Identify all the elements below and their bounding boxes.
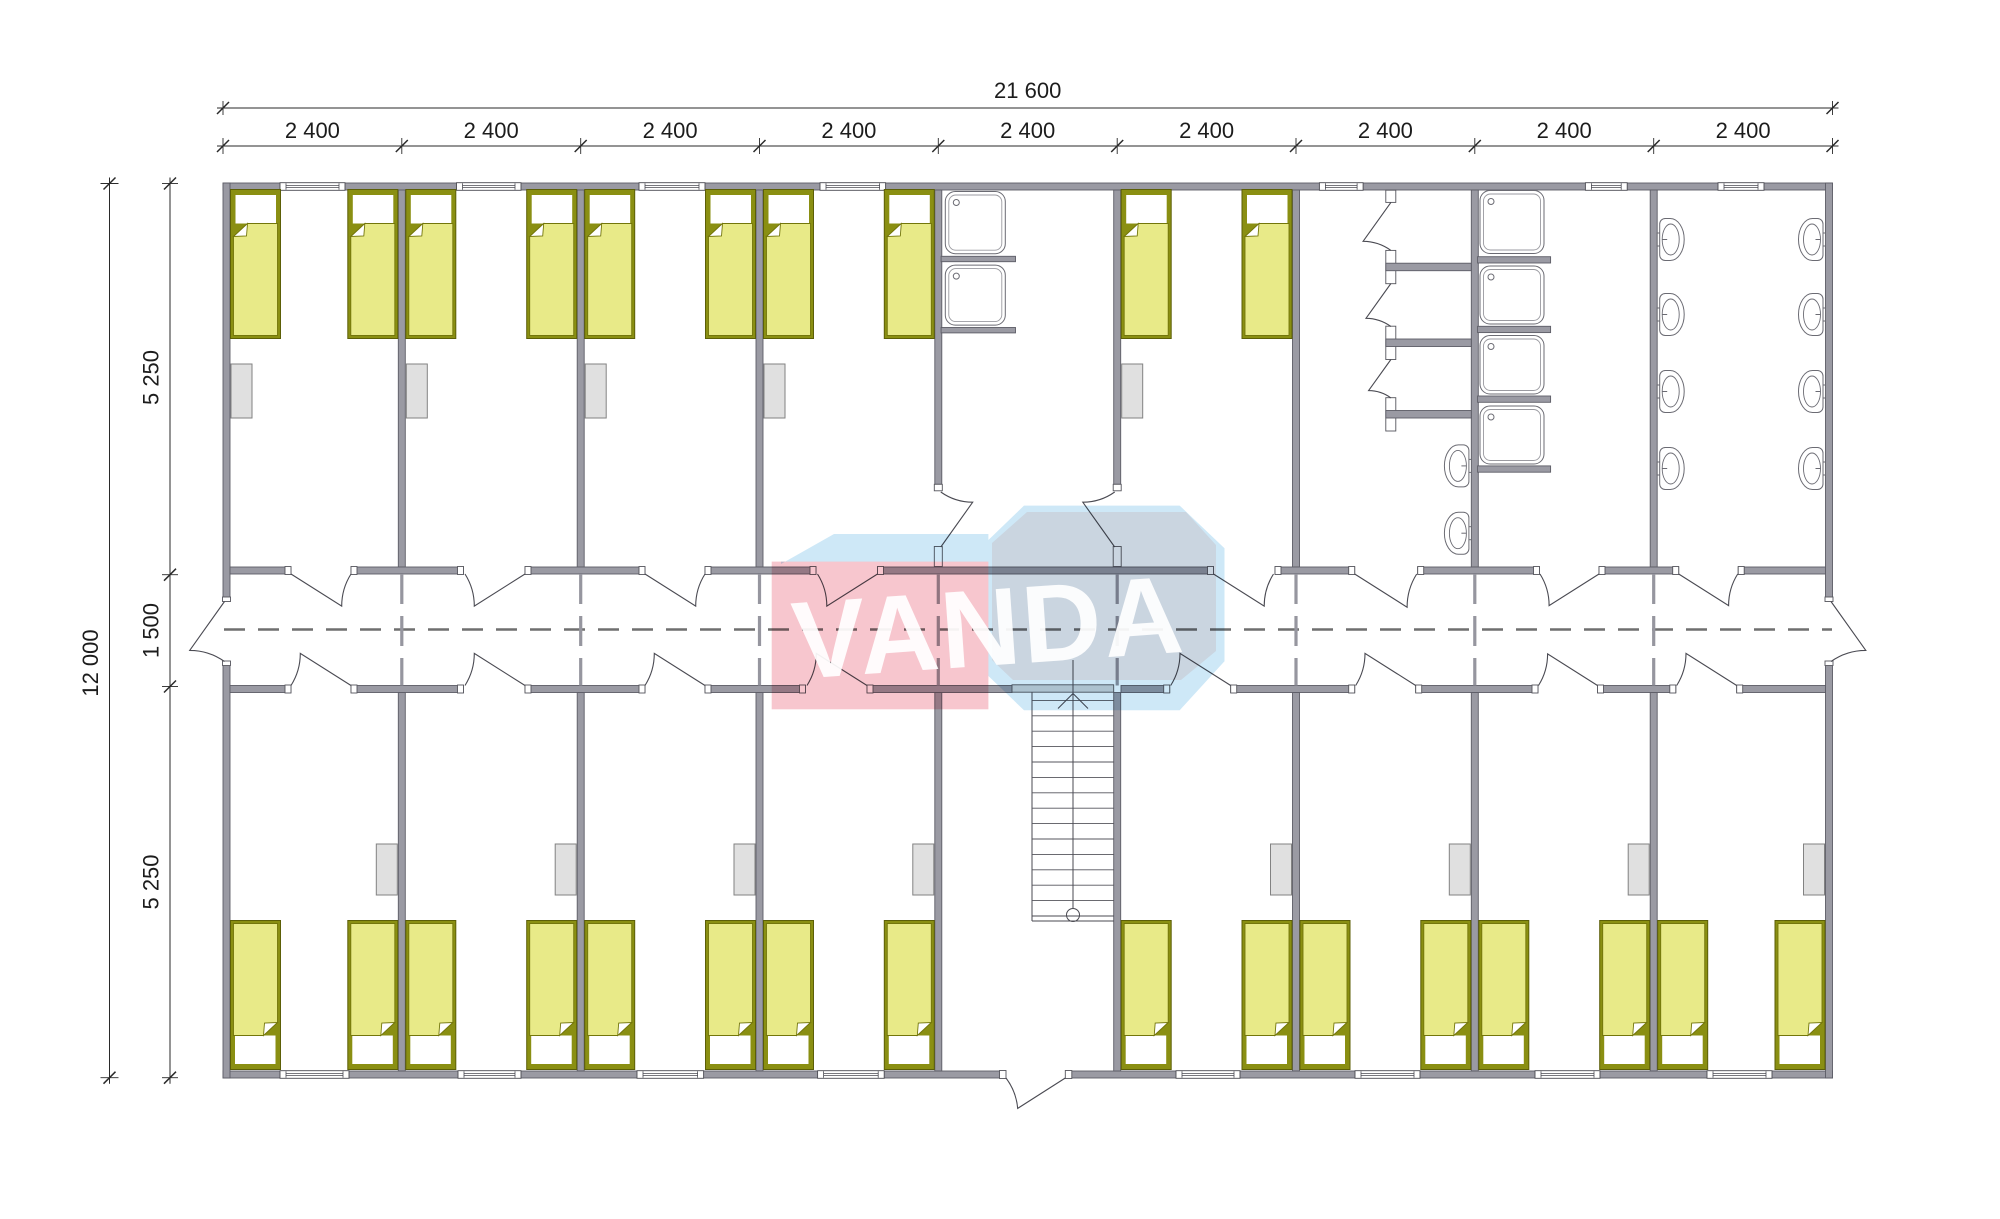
svg-text:2 400: 2 400 xyxy=(821,118,876,143)
svg-text:2 400: 2 400 xyxy=(285,118,340,143)
svg-text:2 400: 2 400 xyxy=(1179,118,1234,143)
svg-text:2 400: 2 400 xyxy=(1000,118,1055,143)
svg-text:5 250: 5 250 xyxy=(139,854,164,909)
svg-text:5 250: 5 250 xyxy=(139,350,164,405)
svg-text:21 600: 21 600 xyxy=(994,78,1061,103)
svg-text:2 400: 2 400 xyxy=(1716,118,1771,143)
svg-text:12 000: 12 000 xyxy=(78,629,103,696)
svg-text:2 400: 2 400 xyxy=(643,118,698,143)
svg-text:1 500: 1 500 xyxy=(139,603,164,658)
svg-text:2 400: 2 400 xyxy=(464,118,519,143)
svg-text:2 400: 2 400 xyxy=(1358,118,1413,143)
svg-text:2 400: 2 400 xyxy=(1537,118,1592,143)
